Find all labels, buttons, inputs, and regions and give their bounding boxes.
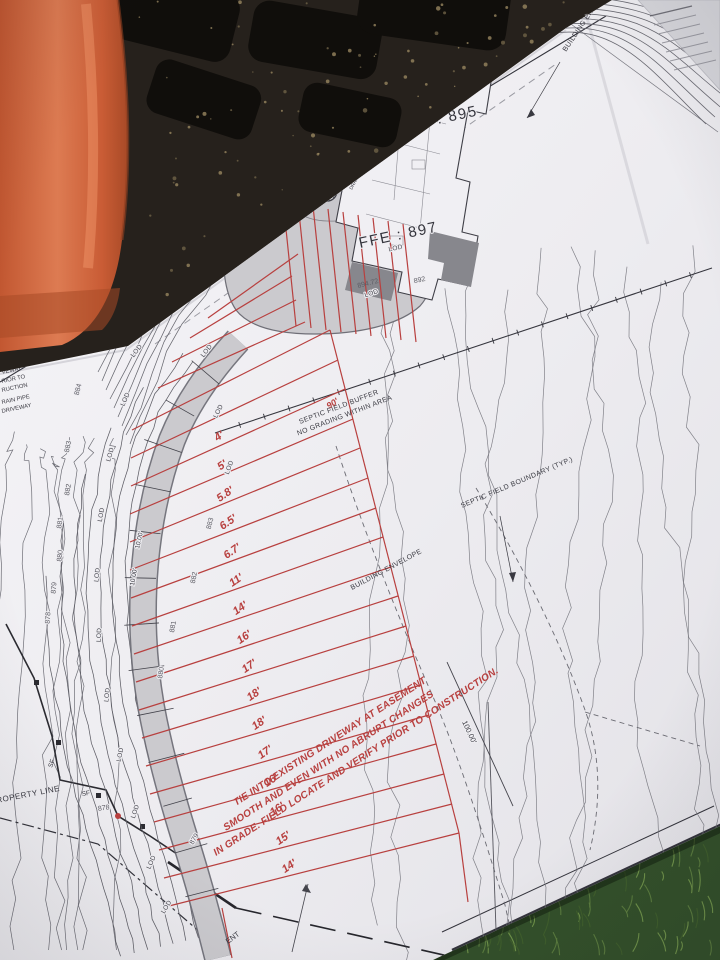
site-plan-photo: 4' 5' 5.8' 6.5' 6.7' 11' 14' 16' 17' 18'… <box>0 0 720 960</box>
photo-of-grading-plan: 4' 5' 5.8' 6.5' 6.7' 11' 14' 16' 17' 18'… <box>0 0 720 960</box>
photo-vignette <box>0 0 720 960</box>
